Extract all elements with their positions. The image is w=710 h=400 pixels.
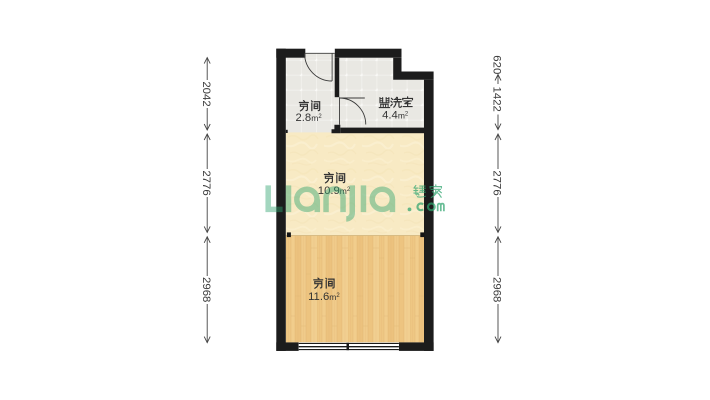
svg-text:2968: 2968 <box>491 277 503 302</box>
svg-text:2776: 2776 <box>491 170 503 195</box>
svg-text:11.6m2: 11.6m2 <box>308 291 340 303</box>
svg-text:2776: 2776 <box>200 170 212 195</box>
svg-text:2042: 2042 <box>200 81 212 106</box>
svg-text:1422: 1422 <box>491 87 503 112</box>
svg-text:2968: 2968 <box>200 277 212 302</box>
svg-text:620: 620 <box>491 55 503 74</box>
svg-text:4.4m2: 4.4m2 <box>382 110 409 122</box>
svg-text:2.8m2: 2.8m2 <box>296 112 323 124</box>
